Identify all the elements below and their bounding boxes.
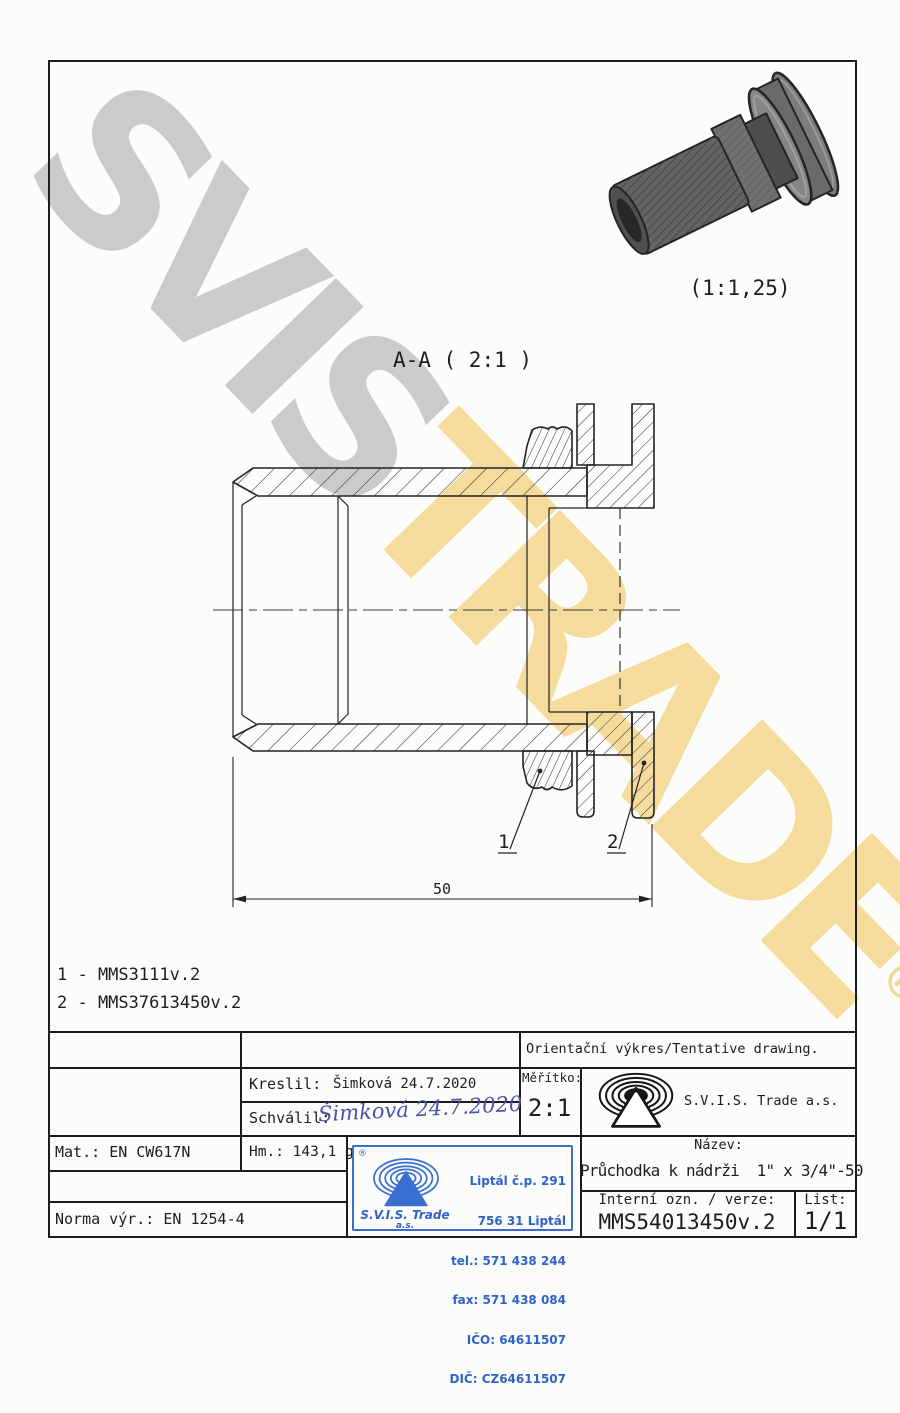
scanned-drawing-page: { "watermark": { "part1": "SVIS", "part2… bbox=[0, 0, 900, 1288]
interni-label: Interní ozn. / verze: bbox=[580, 1192, 794, 1208]
parts-list-item-2: 2 - MMS37613450v.2 bbox=[57, 991, 241, 1015]
stamp-company-suffix: a.s. bbox=[358, 1221, 452, 1231]
list-label: List: bbox=[794, 1192, 857, 1208]
stamp-logo bbox=[366, 1157, 446, 1209]
mat-label: Mat.: bbox=[55, 1143, 100, 1161]
balloon-label-2: 2 bbox=[607, 831, 618, 853]
company-stamp: ® S.V.I.S. Trade a.s. Liptál č.p. 291 75… bbox=[352, 1145, 573, 1231]
stamp-address: Liptál č.p. 291 756 31 Liptál tel.: 571 … bbox=[449, 1149, 566, 1413]
material-label: Mat.: EN CW617N bbox=[55, 1135, 190, 1170]
preview-scale-label: (1:1,25) bbox=[680, 276, 800, 300]
norma-label-row: Norma výr.: EN 1254-4 bbox=[55, 1201, 245, 1237]
tentative-drawing-note: Orientační výkres/Tentative drawing. bbox=[526, 1031, 819, 1067]
internal-code: MMS54013450v.2 bbox=[580, 1209, 794, 1235]
company-name: S.V.I.S. Trade a.s. bbox=[684, 1067, 838, 1135]
stamp-address-line: DIČ: CZ64611507 bbox=[449, 1373, 566, 1386]
nazev-label: Název: bbox=[580, 1137, 857, 1153]
mat-value: EN CW617N bbox=[109, 1143, 190, 1161]
section-title: A-A ( 2:1 ) bbox=[390, 348, 535, 372]
meritko-label: Měřítko: bbox=[522, 1070, 582, 1085]
norma-value: EN 1254-4 bbox=[163, 1210, 244, 1228]
parts-list-item-1: 1 - MMS3111v.2 bbox=[57, 963, 200, 987]
stamp-address-line: Liptál č.p. 291 bbox=[449, 1175, 566, 1188]
stamp-address-line: tel.: 571 438 244 bbox=[449, 1255, 566, 1268]
company-logo bbox=[590, 1072, 682, 1130]
kreslil-label: Kreslil: bbox=[249, 1067, 321, 1101]
weight-label: Hm.: 143,1 g bbox=[249, 1135, 354, 1170]
dimension-50-value: 50 bbox=[420, 880, 464, 898]
hm-label: Hm.: bbox=[249, 1144, 284, 1160]
stamp-address-line: fax: 571 438 084 bbox=[449, 1294, 566, 1307]
part-name: Průchodka k nádrži 1" x 3/4"-50 bbox=[580, 1156, 857, 1186]
meritko-value: 2:1 bbox=[519, 1094, 580, 1122]
stamp-address-line: IČO: 64611507 bbox=[449, 1334, 566, 1347]
balloon-label-1: 1 bbox=[498, 831, 509, 853]
titleblock-line bbox=[240, 1031, 242, 1170]
norma-label: Norma výr.: bbox=[55, 1210, 154, 1228]
titleblock-line bbox=[48, 1170, 346, 1172]
stamp-address-line: 756 31 Liptál bbox=[449, 1215, 566, 1228]
hm-value: 143,1 g bbox=[293, 1144, 354, 1160]
stamp-company: S.V.I.S. Trade bbox=[358, 1208, 452, 1222]
sheet-number: 1/1 bbox=[794, 1208, 857, 1235]
